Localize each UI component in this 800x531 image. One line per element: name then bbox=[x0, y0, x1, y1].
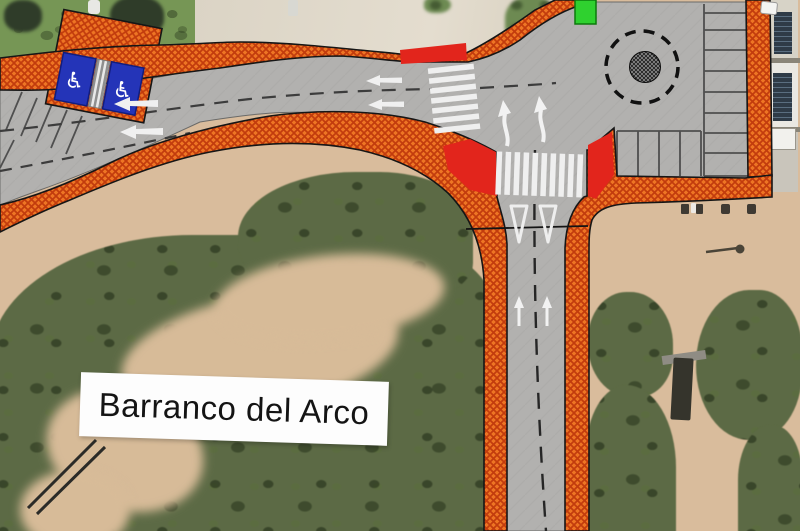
white-vehicle bbox=[760, 1, 777, 15]
construction-hatch-right-strip bbox=[746, 0, 772, 177]
area-label: Barranco del Arco bbox=[79, 372, 389, 446]
ground-marks bbox=[681, 203, 756, 214]
aerial-site-plan: ♿ ♿ bbox=[0, 0, 800, 531]
fallen-branch bbox=[706, 245, 745, 254]
wall-shadow-lines bbox=[28, 440, 105, 514]
area-label-text: Barranco del Arco bbox=[98, 386, 370, 432]
site-plan-overlay: ♿ ♿ bbox=[0, 0, 800, 531]
green-marker bbox=[575, 0, 596, 24]
roundabout-center-island bbox=[630, 52, 661, 83]
